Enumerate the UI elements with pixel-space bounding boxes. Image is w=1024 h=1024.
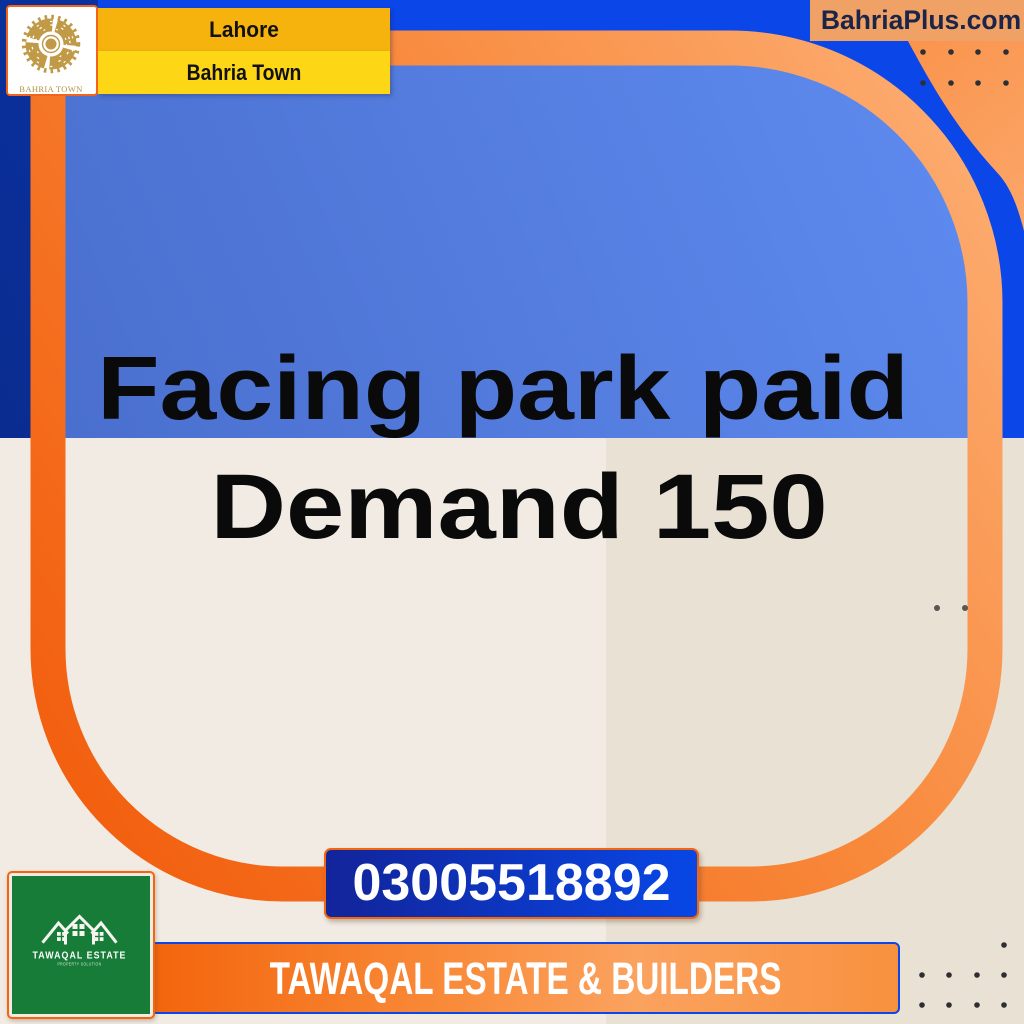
svg-text:TAWAQAL ESTATE: TAWAQAL ESTATE bbox=[33, 951, 127, 962]
svg-text:BAHRIA TOWN: BAHRIA TOWN bbox=[19, 84, 83, 94]
svg-text:PROPERTY SOLUTION: PROPERTY SOLUTION bbox=[58, 962, 102, 967]
